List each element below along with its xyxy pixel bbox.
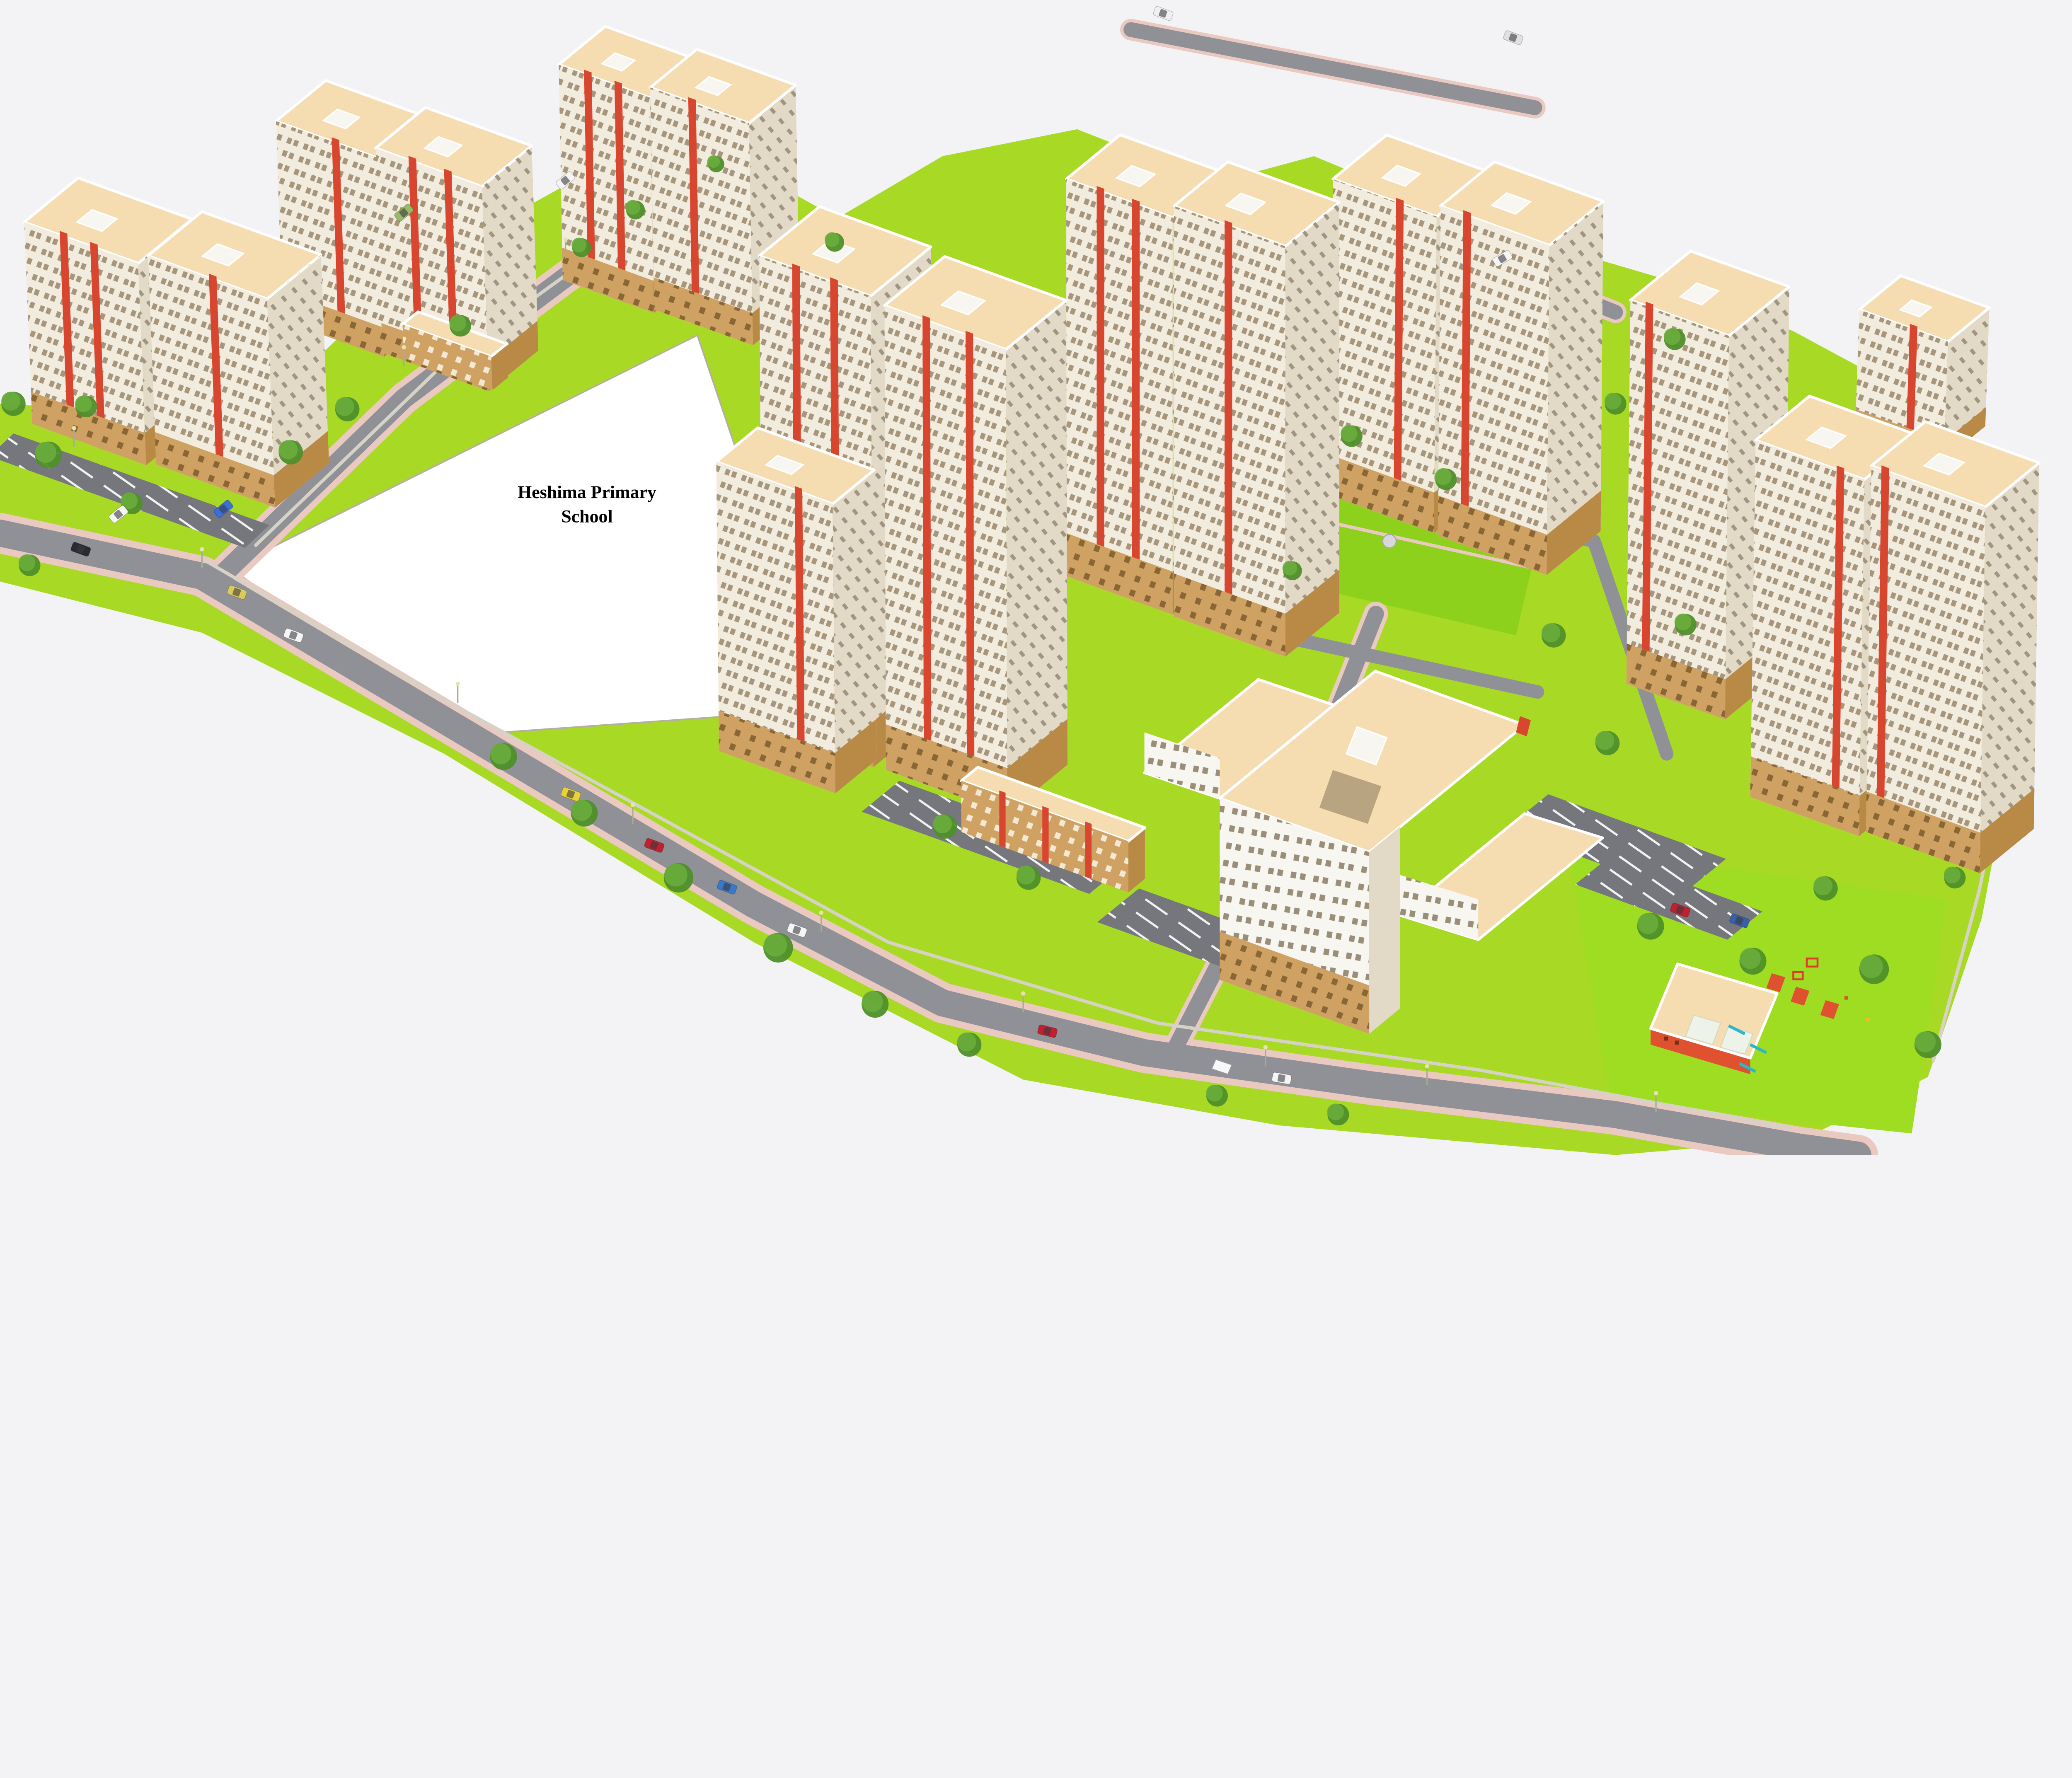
- tree: [862, 991, 888, 1018]
- tree: [763, 933, 793, 962]
- tree: [664, 863, 693, 893]
- tree: [1915, 1031, 1941, 1058]
- building-tower: [148, 212, 329, 508]
- tree: [1637, 913, 1664, 940]
- tree: [278, 440, 303, 464]
- tree: [1542, 623, 1566, 648]
- masterplan-render: Heshima Primary School: [0, 0, 2072, 1155]
- masterplan-scene: Heshima Primary School: [0, 0, 2072, 1155]
- building-tower: [885, 256, 1068, 814]
- lawn-sculpture: [1383, 535, 1396, 548]
- building-tower: [1438, 162, 1603, 575]
- playground-toy: [1844, 996, 1848, 999]
- tree: [1, 392, 26, 416]
- tree: [335, 397, 360, 421]
- tree: [1017, 866, 1041, 890]
- tree: [1595, 731, 1620, 755]
- playground-toy: [1866, 1018, 1869, 1021]
- tree: [571, 800, 598, 827]
- tree: [490, 743, 517, 770]
- building-tower: [1866, 422, 2039, 873]
- school-label-line2: School: [561, 507, 612, 527]
- building-tower: [716, 428, 877, 793]
- tree: [957, 1033, 982, 1057]
- tree: [933, 814, 957, 839]
- tree: [35, 442, 62, 469]
- tree: [1813, 876, 1838, 901]
- tree: [1740, 948, 1767, 975]
- school-label-line1: Heshima Primary: [518, 482, 656, 502]
- building-tower: [1174, 162, 1339, 657]
- tree: [1859, 954, 1889, 984]
